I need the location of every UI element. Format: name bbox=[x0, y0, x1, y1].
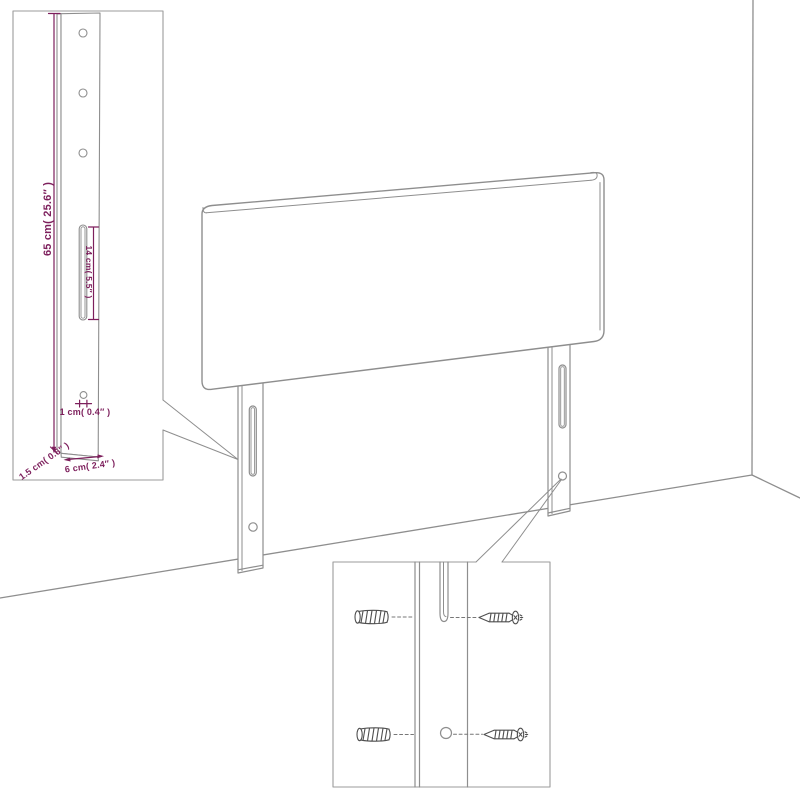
callout-wedge-screw-hole bbox=[476, 479, 562, 562]
dimension-label-leg-height: 65 cm( 25.6″ ) bbox=[42, 182, 54, 256]
dimension-label-slot-length: 14 cm( 5.5″ ) bbox=[84, 246, 94, 299]
dimension-label-hole-size: 1 cm( 0.4″ ) bbox=[60, 407, 111, 417]
callout-wedge-left-leg bbox=[163, 400, 238, 460]
diagram-canvas: 65 cm( 25.6″ ) 14 cm( 5.5″ ) 1 cm( 0.4″ … bbox=[0, 0, 800, 800]
wall-corner-line bbox=[752, 0, 753, 475]
floor-line-right bbox=[752, 475, 800, 498]
left-mounting-leg bbox=[238, 376, 263, 573]
callout-wedges bbox=[163, 400, 562, 562]
assembly-diagram bbox=[0, 0, 800, 800]
headboard-panel bbox=[202, 172, 604, 389]
mounting-detail-inset bbox=[333, 562, 550, 787]
